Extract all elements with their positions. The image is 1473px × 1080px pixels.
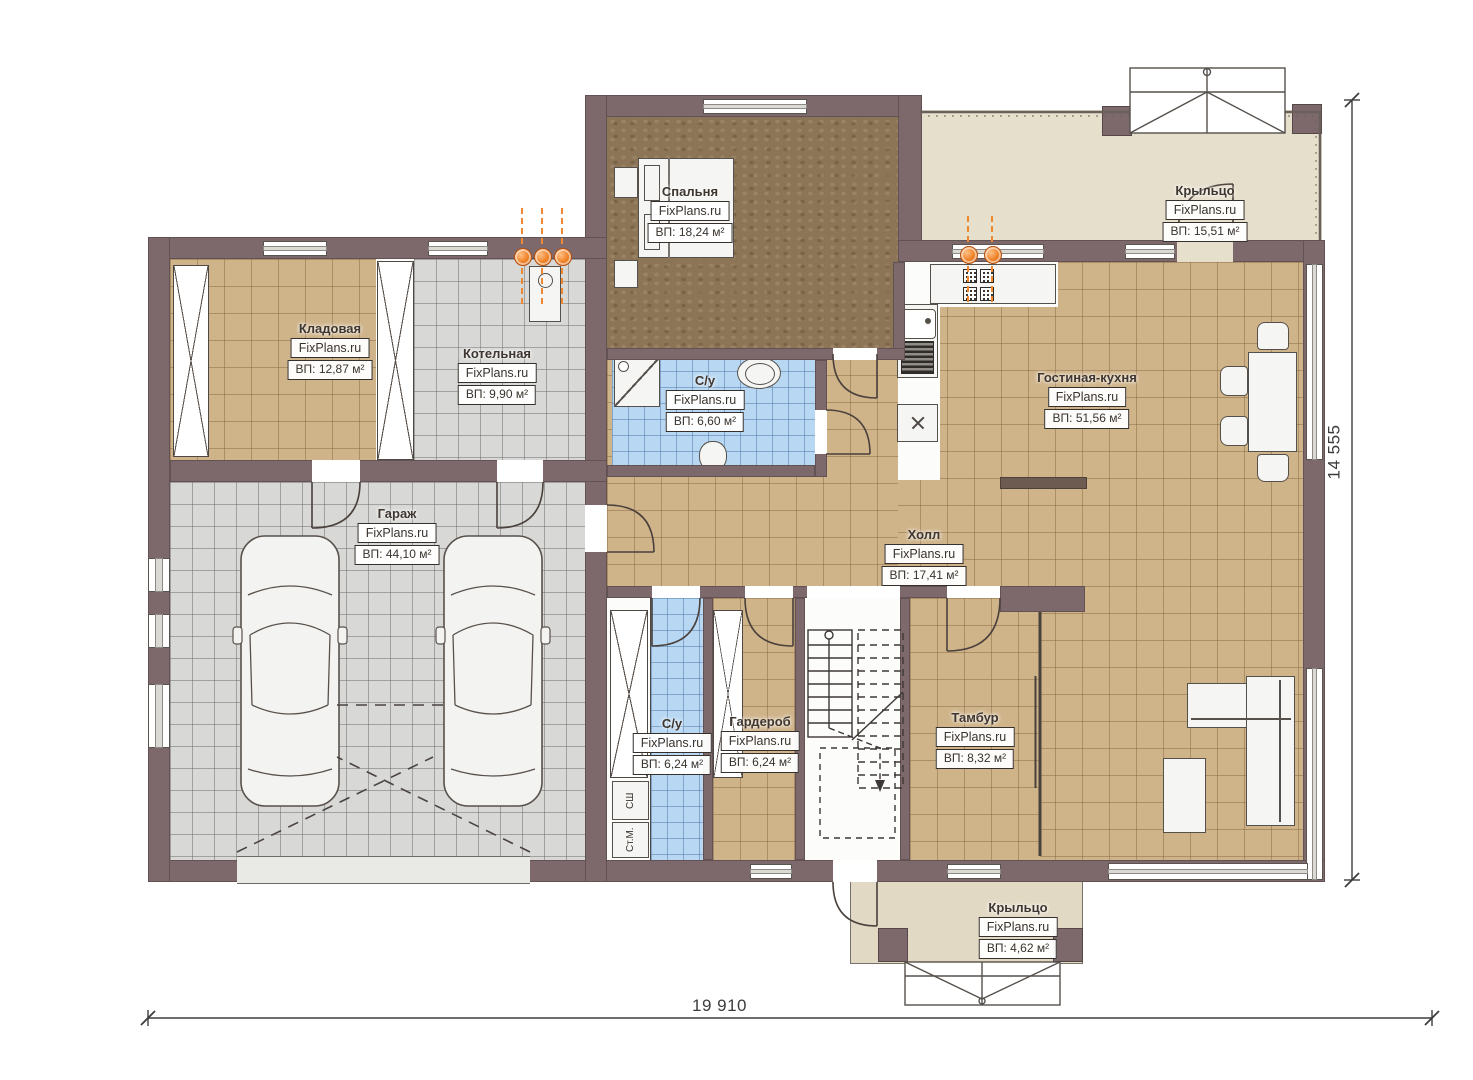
wall-bedroom-porch — [898, 95, 922, 262]
porch-pilaster — [1102, 106, 1132, 136]
door-opening-bathroom2 — [652, 586, 700, 598]
room-area: ВП: 6,24 м² — [721, 753, 799, 773]
room-name: Холл — [908, 527, 941, 542]
brand-badge: FixPlans.ru — [666, 390, 745, 410]
dryer-label: СШ — [613, 782, 648, 819]
room-label-hall: Холл FixPlans.ru ВП: 17,41 м² — [882, 527, 967, 586]
window-dining — [1306, 264, 1323, 460]
shelving-rack-icon — [173, 265, 209, 457]
room-name: Гардероб — [729, 714, 790, 729]
tv-console — [1000, 477, 1087, 489]
window-panoramic-bottom — [1108, 863, 1308, 880]
door-opening-entrance — [833, 860, 877, 882]
gas-dot-icon — [514, 248, 532, 266]
gas-dot-icon — [984, 246, 1002, 264]
washer-label: Ст.М. — [613, 823, 648, 857]
room-name: Кладовая — [299, 321, 361, 336]
chair — [1257, 322, 1289, 350]
wall-center-vertical — [585, 95, 607, 882]
niche-garage-2 — [148, 614, 170, 648]
room-name: С/у — [695, 373, 715, 388]
burner-icon — [963, 287, 977, 301]
window-storage — [263, 241, 327, 256]
room-label-wardrobe: Гардероб FixPlans.ru ВП: 6,24 м² — [721, 714, 800, 773]
wall-kitchen-nook-left — [893, 262, 905, 360]
niche-garage-3 — [148, 684, 170, 748]
washing-machine: Ст.М. — [612, 822, 649, 858]
wall-vestibule-stub — [1000, 586, 1085, 612]
room-area: ВП: 15,51 м² — [1163, 222, 1248, 242]
dryer-cabinet: СШ — [612, 781, 649, 820]
exterior-steps-bottom — [905, 962, 1060, 1005]
room-area: ВП: 51,56 м² — [1045, 409, 1130, 429]
door-opening-storage-garage — [312, 460, 360, 482]
room-name: Гараж — [378, 506, 417, 521]
window-bedroom — [703, 99, 807, 114]
room-area: ВП: 44,10 м² — [355, 545, 440, 565]
floor-staircase — [805, 598, 900, 860]
shelving-rack-icon — [377, 261, 414, 460]
room-area: ВП: 18,24 м² — [648, 223, 733, 243]
niche-garage-1 — [148, 558, 170, 592]
dishwasher — [901, 341, 934, 374]
wall-stairs-vestibule — [900, 598, 910, 860]
room-label-storage: Кладовая FixPlans.ru ВП: 12,87 м² — [288, 321, 373, 380]
dimension-width: 19 910 — [692, 996, 747, 1016]
brand-badge: FixPlans.ru — [936, 727, 1015, 747]
room-name: Гостиная-кухня — [1037, 370, 1137, 385]
wall-bathroom1-bottom — [607, 465, 815, 477]
brand-badge: FixPlans.ru — [885, 544, 964, 564]
coffee-table — [1163, 758, 1206, 833]
room-label-boiler: Котельная FixPlans.ru ВП: 9,90 м² — [458, 346, 537, 405]
chair — [1220, 366, 1248, 396]
brand-badge: FixPlans.ru — [979, 917, 1058, 937]
room-area: ВП: 4,62 м² — [979, 939, 1057, 959]
window-panoramic-right — [1306, 668, 1323, 880]
garage-door — [237, 856, 530, 884]
room-label-bathroom1: С/у FixPlans.ru ВП: 6,60 м² — [666, 373, 745, 432]
brand-badge: FixPlans.ru — [358, 523, 437, 543]
door-opening-vestibule — [947, 586, 1000, 598]
window-boiler — [428, 241, 488, 256]
window-vestibule — [947, 864, 1001, 879]
room-label-porch-bottom: Крыльцо FixPlans.ru ВП: 4,62 м² — [979, 900, 1058, 959]
room-label-vestibule: Тамбур FixPlans.ru ВП: 8,32 м² — [936, 710, 1015, 769]
room-name: Крыльцо — [988, 900, 1047, 915]
window-wardrobe — [750, 864, 792, 879]
kitchen-faucet-icon — [925, 318, 931, 324]
door-opening-bathroom1 — [815, 410, 827, 454]
room-area: ВП: 6,24 м² — [633, 755, 711, 775]
brand-badge: FixPlans.ru — [633, 733, 712, 753]
door-opening-porch-top — [1177, 240, 1233, 262]
shower-head-icon — [618, 361, 629, 372]
sofa-section — [1246, 676, 1295, 826]
room-label-garage: Гараж FixPlans.ru ВП: 44,10 м² — [355, 506, 440, 565]
room-name: Спальня — [662, 184, 718, 199]
nightstand — [614, 260, 638, 288]
kitchen-sink — [901, 309, 936, 339]
room-label-bedroom: Спальня FixPlans.ru ВП: 18,24 м² — [648, 184, 733, 243]
door-opening-wardrobe — [745, 586, 793, 598]
dimension-height: 14 555 — [1325, 425, 1345, 480]
gas-dot-icon — [534, 248, 552, 266]
window-porch-top — [1125, 244, 1175, 259]
sofa-back-line — [1191, 718, 1291, 720]
kitchen-cabinet — [897, 404, 938, 442]
room-area: ВП: 6,60 м² — [666, 412, 744, 432]
door-opening-boiler-garage — [497, 460, 543, 482]
door-opening-bedroom — [833, 348, 877, 360]
burner-icon — [963, 269, 977, 283]
floor-plan: СШ Ст.М. — [0, 0, 1473, 1080]
room-name: Котельная — [463, 346, 531, 361]
opening-stairs — [807, 586, 900, 598]
gas-dot-icon — [960, 246, 978, 264]
brand-badge: FixPlans.ru — [1166, 200, 1245, 220]
brand-badge: FixPlans.ru — [651, 201, 730, 221]
room-label-bathroom2: С/у FixPlans.ru ВП: 6,24 м² — [633, 716, 712, 775]
chair — [1220, 416, 1248, 446]
brand-badge: FixPlans.ru — [721, 731, 800, 751]
sink-bowl — [745, 363, 775, 385]
dining-table — [1248, 352, 1297, 452]
room-label-living-kitchen: Гостиная-кухня FixPlans.ru ВП: 51,56 м² — [1037, 370, 1137, 429]
room-area: ВП: 17,41 м² — [882, 566, 967, 586]
room-area: ВП: 9,90 м² — [458, 385, 536, 405]
room-label-porch-top: Крыльцо FixPlans.ru ВП: 15,51 м² — [1163, 183, 1248, 242]
room-name: С/у — [662, 716, 682, 731]
brand-badge: FixPlans.ru — [1048, 387, 1127, 407]
room-name: Тамбур — [951, 710, 998, 725]
cabinet-x-icon — [911, 416, 925, 430]
door-opening-garage-hall — [585, 505, 607, 552]
room-name: Крыльцо — [1175, 183, 1234, 198]
brand-badge: FixPlans.ru — [458, 363, 537, 383]
sofa-back-line — [1279, 680, 1281, 822]
brand-badge: FixPlans.ru — [291, 338, 370, 358]
porch-pilaster — [1053, 928, 1083, 962]
room-area: ВП: 8,32 м² — [936, 749, 1014, 769]
room-area: ВП: 12,87 м² — [288, 360, 373, 380]
porch-pilaster — [878, 928, 908, 962]
gas-dot-icon — [554, 248, 572, 266]
porch-pilaster — [1292, 104, 1322, 134]
nightstand — [614, 167, 638, 198]
chair — [1257, 454, 1289, 482]
